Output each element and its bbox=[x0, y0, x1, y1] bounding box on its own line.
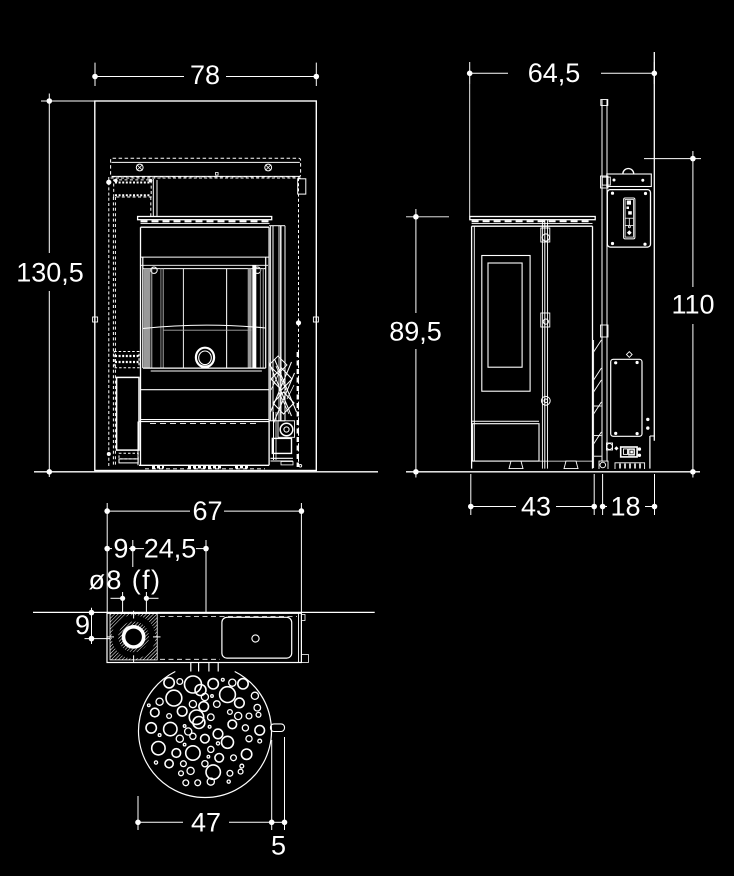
svg-text:ø8 (f): ø8 (f) bbox=[89, 565, 162, 595]
svg-text:47: 47 bbox=[191, 807, 221, 837]
svg-text:5: 5 bbox=[271, 830, 286, 860]
svg-text:130,5: 130,5 bbox=[16, 258, 84, 288]
svg-text:110: 110 bbox=[671, 290, 714, 320]
svg-text:43: 43 bbox=[521, 492, 551, 522]
svg-text:78: 78 bbox=[190, 60, 220, 90]
svg-text:64,5: 64,5 bbox=[528, 58, 581, 88]
svg-text:89,5: 89,5 bbox=[389, 317, 442, 347]
svg-text:24,5: 24,5 bbox=[144, 534, 197, 564]
svg-text:9: 9 bbox=[75, 610, 90, 640]
svg-text:67: 67 bbox=[192, 496, 222, 526]
svg-text:18: 18 bbox=[610, 492, 640, 522]
svg-text:9: 9 bbox=[113, 534, 128, 564]
